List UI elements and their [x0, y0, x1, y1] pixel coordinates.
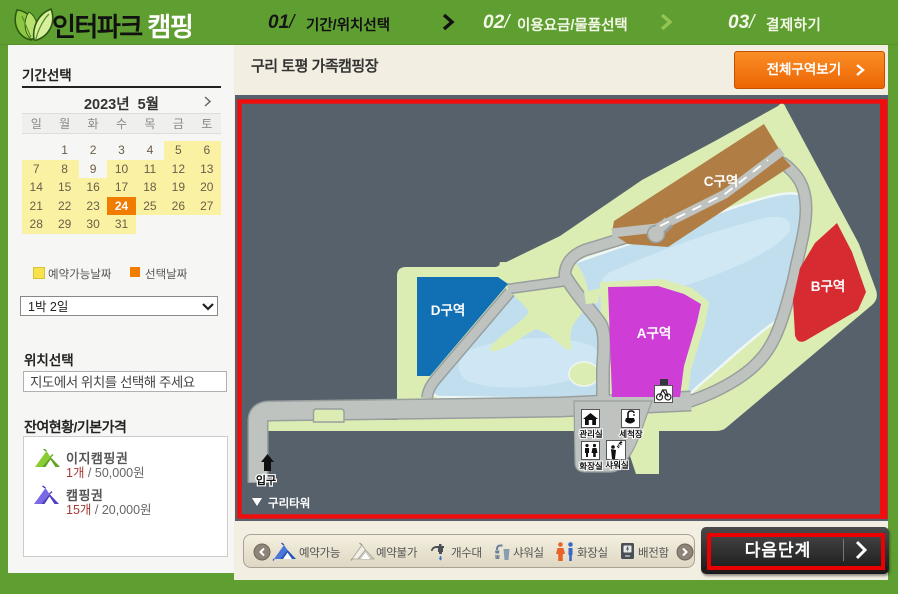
svg-text:화장실: 화장실	[577, 547, 608, 560]
svg-text:샤워실: 샤워실	[605, 460, 629, 470]
svg-text:D구역: D구역	[431, 302, 466, 318]
svg-text:관리실: 관리실	[579, 429, 603, 439]
svg-text:개수대: 개수대	[451, 547, 482, 560]
svg-text:샤워실: 샤워실	[513, 547, 544, 560]
svg-text:A구역: A구역	[637, 325, 672, 341]
svg-text:B구역: B구역	[811, 278, 846, 294]
svg-text:C구역: C구역	[704, 173, 739, 189]
svg-text:입구: 입구	[256, 474, 276, 487]
svg-text:배전함: 배전함	[638, 547, 670, 560]
svg-text:화장실: 화장실	[579, 461, 603, 471]
svg-text:구리타워: 구리타워	[268, 496, 310, 510]
svg-text:세척장: 세척장	[619, 429, 643, 439]
svg-text:예약불가: 예약불가	[376, 546, 418, 560]
svg-text:예약가능: 예약가능	[299, 546, 340, 560]
